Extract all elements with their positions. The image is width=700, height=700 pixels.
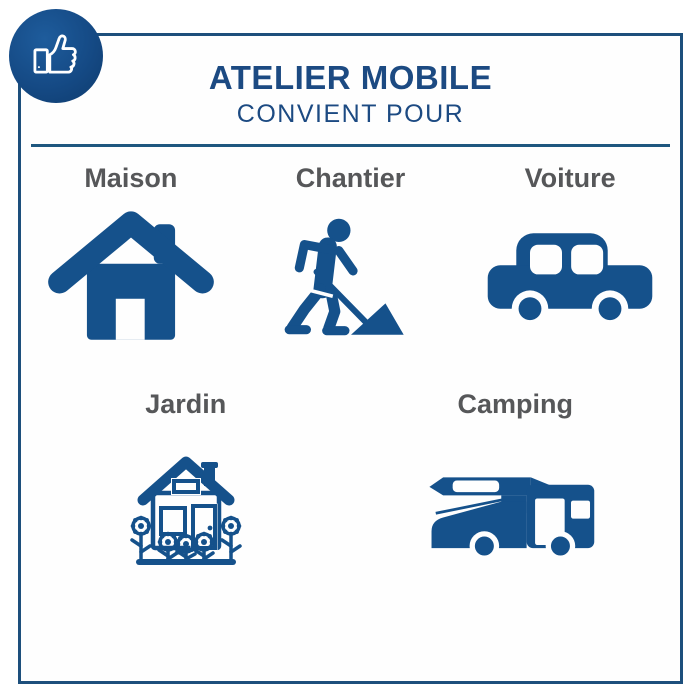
item-jardin: Jardin [21,389,351,583]
page-subtitle: CONVIENT POUR [21,99,680,130]
item-label: Camping [457,389,573,419]
item-label: Maison [84,163,177,193]
suitable-for-row-1: Maison Chantier [21,163,680,355]
garden-house-flowers-icon [21,433,351,583]
item-label: Jardin [145,389,226,419]
thumbs-up-badge [9,9,103,103]
item-camping: Camping [351,389,681,583]
item-label: Chantier [296,163,406,193]
page-title: ATELIER MOBILE [21,59,680,97]
house-icon [21,203,241,355]
item-chantier: Chantier [241,163,461,355]
item-voiture: Voiture [460,163,680,355]
construction-worker-icon [241,203,461,355]
divider [31,144,670,147]
camper-van-icon [351,433,681,583]
suitable-for-row-2: Jardin [21,389,680,583]
item-label: Voiture [525,163,616,193]
header: ATELIER MOBILE CONVIENT POUR [21,36,680,130]
poster-card: ATELIER MOBILE CONVIENT POUR Maison Chan… [18,33,683,684]
car-icon [460,203,680,355]
item-maison: Maison [21,163,241,355]
thumbs-up-icon [25,25,87,87]
